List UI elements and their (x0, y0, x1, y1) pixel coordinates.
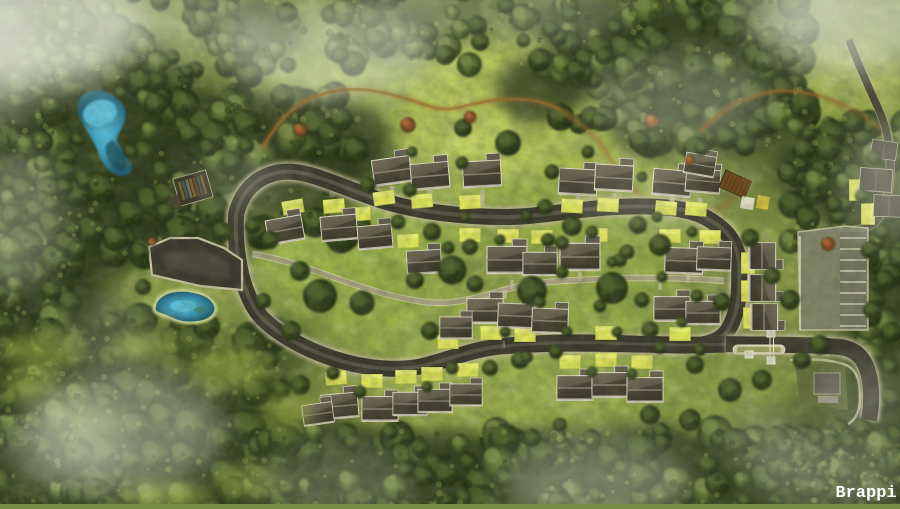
svg-text:Brappi: Brappi (835, 484, 896, 503)
